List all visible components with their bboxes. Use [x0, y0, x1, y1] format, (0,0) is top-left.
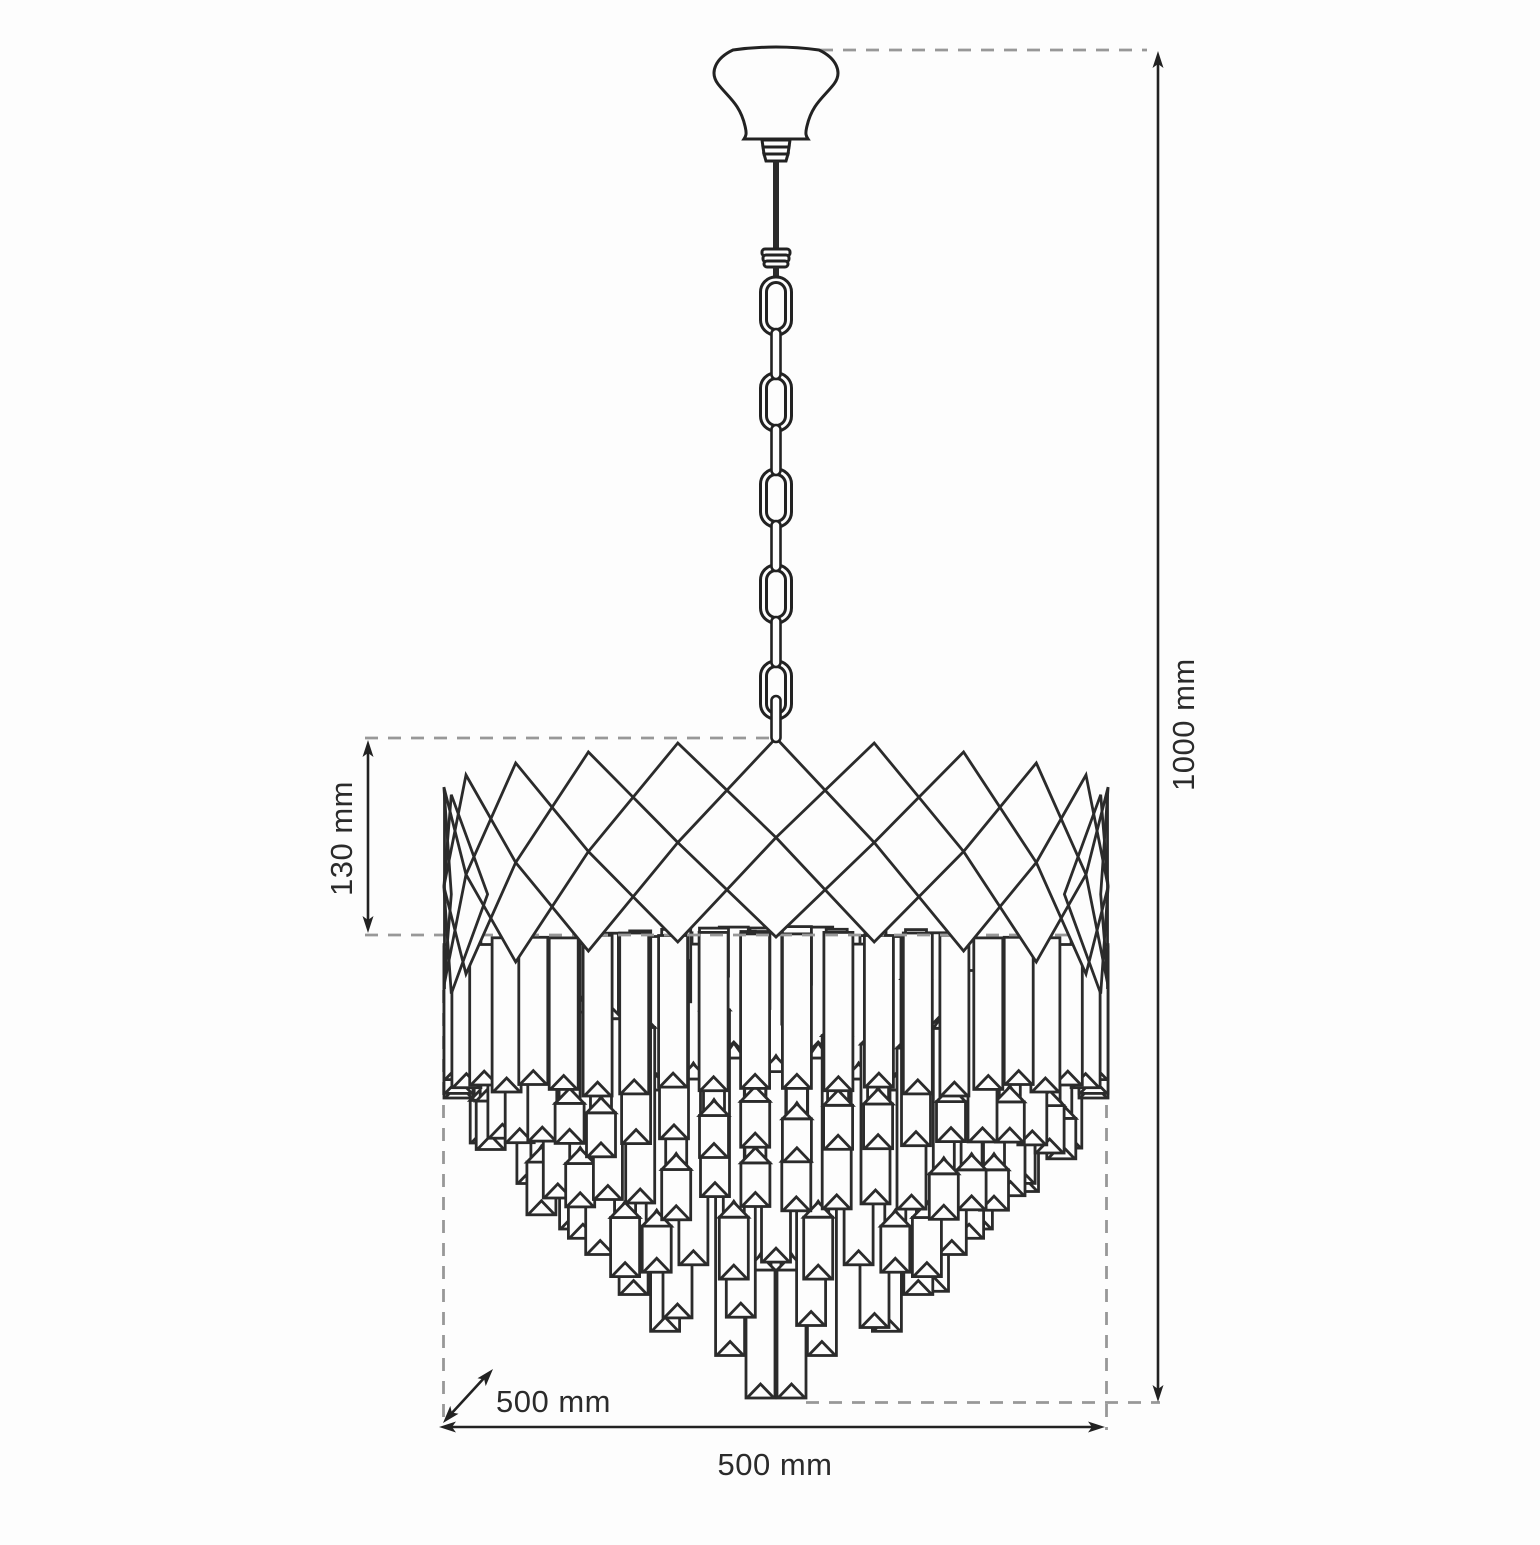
svg-text:500 mm: 500 mm: [496, 1384, 611, 1419]
svg-text:1000 mm: 1000 mm: [1166, 658, 1201, 791]
svg-text:500 mm: 500 mm: [718, 1447, 833, 1482]
svg-text:130 mm: 130 mm: [324, 781, 359, 896]
